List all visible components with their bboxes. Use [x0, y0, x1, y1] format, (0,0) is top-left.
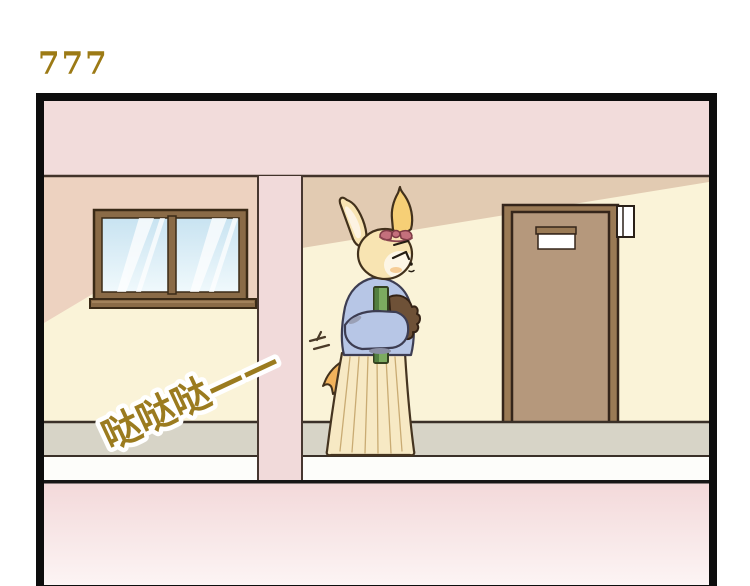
bottom-fade [44, 484, 709, 586]
hallway-door[interactable] [503, 205, 618, 424]
door-nameplate [536, 227, 576, 249]
panel-scene: 哒哒哒—— [44, 101, 709, 585]
blush [390, 267, 402, 273]
nose [409, 262, 413, 266]
comic-page: 777 [0, 0, 750, 586]
hallway-window [90, 210, 256, 308]
door-side-sign [617, 206, 634, 237]
episode-number: 777 [38, 49, 109, 80]
window-mullion [168, 216, 176, 294]
comic-panel: 哒哒哒—— [36, 93, 717, 586]
window-sill [90, 299, 256, 308]
ceiling [44, 101, 709, 176]
pillar [258, 176, 302, 480]
arm [345, 311, 408, 349]
floor-edge-line [44, 480, 709, 484]
